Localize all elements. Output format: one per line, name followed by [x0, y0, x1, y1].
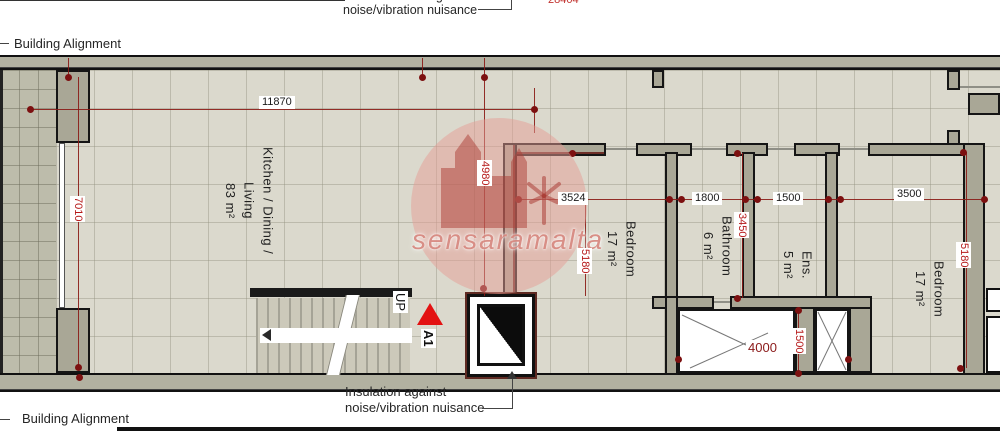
door-leaf-bedroom2	[840, 148, 868, 150]
dim-node-dot	[666, 196, 673, 203]
bottom-leader-line-h	[482, 408, 513, 409]
section-marker-label: A1	[421, 329, 436, 348]
dim-node-dot	[675, 356, 682, 363]
bottom-leader-arrow-icon	[507, 371, 517, 379]
dim-node-dot	[754, 196, 761, 203]
insulation-note-bottom: Insulation against noise/vibration nuisa…	[345, 384, 484, 417]
room-name: Bedroom	[929, 250, 948, 328]
room-label-bedroom1: Bedroom 17 m²	[602, 210, 640, 288]
dim-node-dot	[795, 370, 802, 377]
dim-node-dot	[76, 374, 83, 381]
dim-label-7010: 7010	[70, 196, 85, 222]
terrace-edge-line	[0, 70, 3, 373]
room-name: Ens.	[797, 238, 816, 292]
right-edge-box-1	[986, 288, 1000, 312]
door-leaf-bedroom1	[606, 148, 636, 150]
door-frame-stub-2	[947, 70, 960, 90]
dim-node-dot	[742, 196, 749, 203]
top-dimension-label: 28404	[548, 0, 579, 6]
building-alignment-top-label: Building Alignment	[14, 36, 121, 52]
room-name: Bedroom	[621, 210, 640, 288]
dim-label-11870: 11870	[259, 96, 295, 109]
dim-node-dot	[65, 74, 72, 81]
shaft-wall-left	[665, 296, 678, 375]
corridor-wall-stub-up	[947, 130, 960, 145]
facade-wall-stub-bottom	[56, 308, 90, 373]
dim-node-dot	[795, 307, 802, 314]
dim-node-dot	[845, 356, 852, 363]
dim-node-dot	[481, 74, 488, 81]
dim-label-3524: 3524	[558, 192, 588, 205]
shaft-wall-right	[849, 307, 872, 373]
terrace-floor	[0, 70, 56, 373]
building-alignment-bottom-label: Building Alignment	[22, 411, 129, 427]
stair-walk-line	[260, 328, 412, 343]
watermark-logo-icon	[411, 118, 587, 294]
lift-symbol-icon	[477, 304, 525, 366]
room-name: Kitchen / Dining / Living	[239, 128, 277, 273]
building-alignment-bottom-line	[117, 427, 1000, 431]
watermark-circle	[411, 118, 587, 294]
room-area: 83 m²	[220, 128, 239, 273]
watermark-text: sensaramalta	[412, 224, 592, 256]
dim-node-dot	[981, 196, 988, 203]
room-area: 17 m²	[910, 250, 929, 328]
insulation-note-line2: noise/vibration nuisance	[345, 400, 484, 416]
lightwell-shaft-small	[815, 309, 849, 373]
building-alignment-top-tick	[0, 43, 9, 44]
room-name: Bathroom	[717, 210, 736, 282]
wetroom-bottom-wall-seg1	[652, 296, 714, 309]
dim-label-1500-h: 1500	[773, 192, 803, 205]
floor-plan-canvas: Insulation against noise/vibration nuisa…	[0, 0, 1000, 431]
dim-node-dot	[734, 295, 741, 302]
right-edge-wall-stub	[968, 93, 1000, 115]
top-leader-line-h	[478, 9, 512, 10]
dim-node-dot	[419, 74, 426, 81]
top-callout-underline	[0, 0, 345, 1]
room-label-ensuite: Ens. 5 m²	[778, 238, 816, 292]
dimension-line-h	[30, 109, 534, 110]
room-label-kitchen: Kitchen / Dining / Living 83 m²	[220, 128, 277, 273]
dim-node-dot	[75, 364, 82, 371]
door-leaf-shaft	[714, 301, 730, 303]
room-label-bathroom: Bathroom 6 m²	[698, 210, 736, 282]
dim-node-dot	[837, 196, 844, 203]
dim-label-5180-right: 5180	[956, 242, 971, 268]
dim-label-3500: 3500	[894, 188, 924, 201]
ensuite-wall-right	[825, 152, 838, 304]
dim-label-1500-v: 1500	[791, 328, 806, 354]
door-leaf-bathroom	[692, 148, 726, 150]
facade-wall-stub-top	[56, 70, 90, 143]
party-wall-top	[0, 55, 1000, 70]
stair-up-label: UP	[393, 291, 408, 313]
room-area: 5 m²	[778, 238, 797, 292]
bottom-leader-line-v	[512, 378, 513, 409]
right-edge-box-2	[986, 316, 1000, 373]
shaft-x-lines	[817, 311, 847, 371]
dim-node-dot	[734, 150, 741, 157]
room-label-bedroom2: Bedroom 17 m²	[910, 250, 948, 328]
insulation-note-top-line2: noise/vibration nuisance	[343, 3, 477, 19]
dim-node-dot	[957, 365, 964, 372]
corridor-wall-seg1	[636, 143, 692, 156]
dim-node-dot	[531, 106, 538, 113]
top-leader-line-v	[511, 0, 512, 10]
section-marker-triangle-icon	[417, 303, 443, 325]
dim-label-1800: 1800	[692, 192, 722, 205]
dim-node-dot	[678, 196, 685, 203]
door-leaf-corridor-end	[960, 86, 1000, 88]
bathroom-wall-left	[665, 152, 678, 304]
dim-node-dot	[960, 149, 967, 156]
door-frame-stub-1	[652, 70, 664, 88]
dim-label-4000: 4000	[746, 340, 779, 355]
door-leaf-ensuite	[768, 148, 794, 150]
dim-label-3450: 3450	[734, 212, 749, 238]
sliding-door-glazing	[59, 143, 65, 308]
building-alignment-bottom-tick	[0, 419, 10, 420]
dim-node-dot	[27, 106, 34, 113]
dim-node-dot	[825, 196, 832, 203]
dim-label-4980: 4980	[477, 160, 492, 186]
dim-label-5180-left: 5180	[577, 248, 592, 274]
room-area: 17 m²	[602, 210, 621, 288]
stair-top-wall	[250, 288, 412, 297]
stair-direction-arrow-icon	[262, 329, 271, 341]
insulation-note-line1: Insulation against	[345, 384, 484, 400]
room-area: 6 m²	[698, 210, 717, 282]
